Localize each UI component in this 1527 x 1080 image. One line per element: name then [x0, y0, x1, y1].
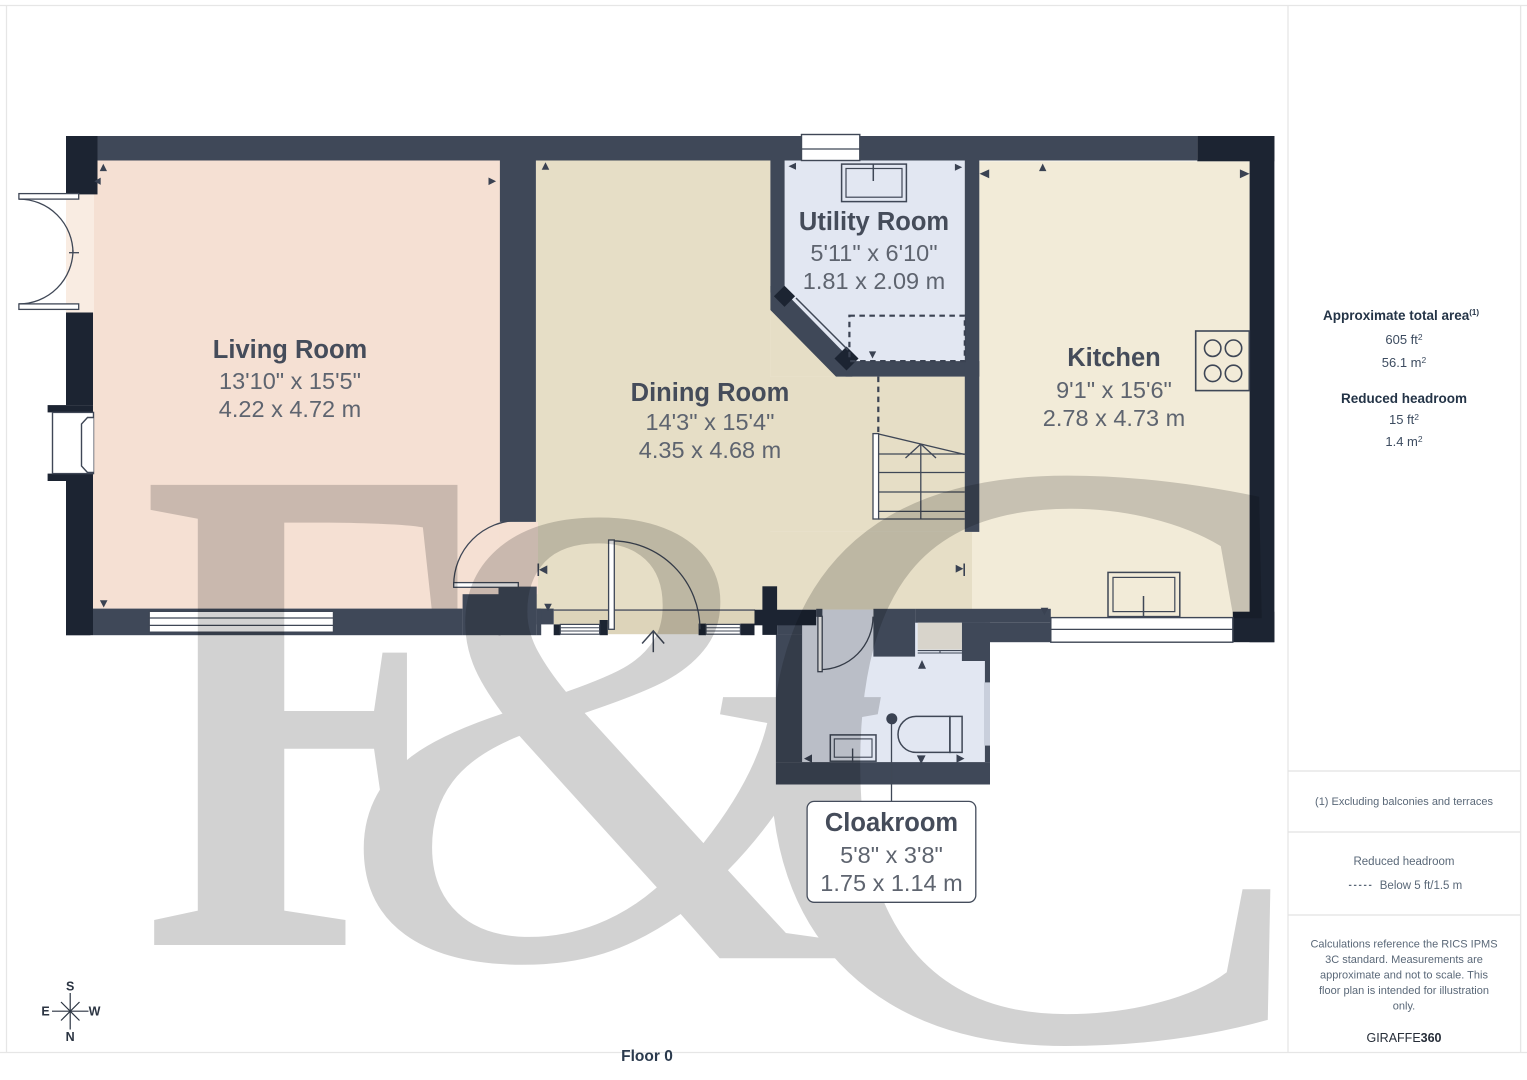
- svg-text:1.4 m2: 1.4 m2: [1385, 434, 1423, 449]
- svg-text:Calculations reference the RIC: Calculations reference the RICS IPMS: [1310, 939, 1497, 951]
- svg-text:5'11" x 6'10": 5'11" x 6'10": [810, 240, 937, 266]
- svg-text:C: C: [735, 282, 1319, 1080]
- svg-text:Reduced headroom: Reduced headroom: [1353, 856, 1454, 868]
- svg-text:Below 5 ft/1.5 m: Below 5 ft/1.5 m: [1380, 880, 1462, 892]
- svg-text:(1) Excluding balconies and te: (1) Excluding balconies and terraces: [1315, 796, 1493, 808]
- svg-text:S: S: [66, 980, 74, 994]
- svg-text:Floor 0: Floor 0: [621, 1048, 673, 1065]
- svg-text:56.1 m2: 56.1 m2: [1382, 355, 1427, 370]
- svg-text:5'8" x 3'8": 5'8" x 3'8": [840, 842, 943, 868]
- svg-text:E: E: [41, 1005, 49, 1019]
- svg-text:605 ft2: 605 ft2: [1385, 332, 1423, 347]
- svg-text:only.: only.: [1393, 1001, 1415, 1013]
- svg-text:approximate and not to scale.: approximate and not to scale. This: [1320, 970, 1488, 982]
- svg-text:Reduced headroom: Reduced headroom: [1341, 391, 1467, 406]
- svg-text:GIRAFFE360: GIRAFFE360: [1366, 1031, 1441, 1045]
- svg-text:Utility Room: Utility Room: [799, 208, 949, 236]
- svg-text:3C standard. Measurements are: 3C standard. Measurements are: [1325, 954, 1483, 966]
- svg-text:W: W: [89, 1005, 101, 1019]
- svg-text:Approximate total area(1): Approximate total area(1): [1323, 308, 1479, 323]
- svg-text:floor plan is intended for ill: floor plan is intended for illustration: [1319, 985, 1489, 997]
- svg-text:N: N: [66, 1030, 75, 1044]
- svg-text:Cloakroom: Cloakroom: [825, 809, 958, 837]
- svg-text:1.75 x 1.14 m: 1.75 x 1.14 m: [820, 870, 962, 896]
